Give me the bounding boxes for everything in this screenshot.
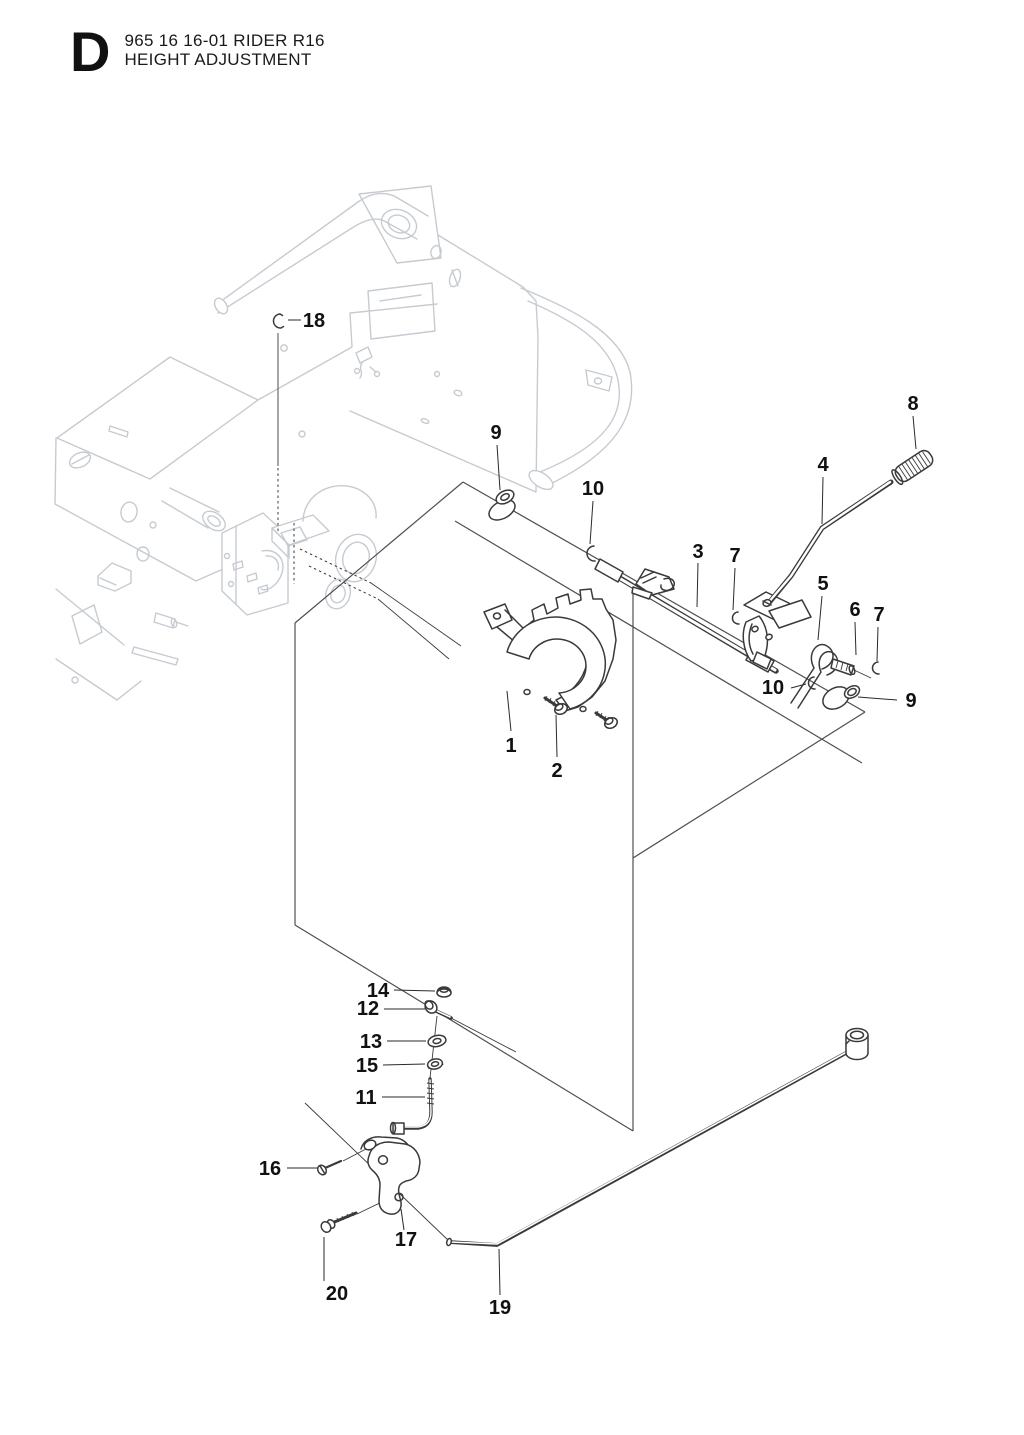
part-7-clip-left: [732, 612, 739, 624]
callout-8-label: 8: [907, 393, 918, 415]
part-19-long-rod: [446, 1029, 868, 1247]
parts-diagram-page: D 965 16 16-01 RIDER R16 HEIGHT ADJUSTME…: [0, 0, 1024, 1435]
part-9-bushing-lower: [819, 682, 862, 713]
rod-sleeve-upper: [595, 559, 623, 582]
steering-head-plate: [359, 186, 441, 263]
callout-2-label: 2: [551, 760, 562, 782]
hook-bolt-rod: [404, 1079, 431, 1128]
callout-1-leader: [507, 691, 511, 731]
part-9-bushing-upper: [486, 487, 519, 524]
frame-hole-small: [150, 522, 156, 528]
deck-slot-small: [421, 418, 430, 424]
callout-1-label: 1: [505, 735, 516, 757]
part-8-knob: [890, 448, 935, 486]
deck-opening: [368, 283, 435, 339]
callout-7-leader: [877, 627, 878, 661]
bracket-tab: [484, 604, 512, 629]
callout-16-label: 16: [259, 1158, 281, 1180]
washer-outer: [427, 1034, 447, 1049]
sector-hole: [524, 690, 530, 695]
callout-9-label: 9: [905, 690, 916, 712]
assembly-axis-lines: [278, 333, 516, 1241]
callout-10-leader: [590, 501, 593, 544]
callout-3-leader: [697, 563, 698, 607]
callout-7-label: 7: [873, 604, 884, 626]
callout-17-label: 17: [395, 1229, 417, 1251]
frame-notch: [109, 426, 128, 437]
axle-tube-cap: [199, 507, 229, 534]
part-16-screw: [316, 1161, 341, 1176]
callout-15-leader: [383, 1064, 425, 1065]
callout-2-leader: [556, 715, 557, 757]
nut-base: [437, 989, 451, 997]
frame-slot-hole-line: [72, 455, 89, 464]
sector-hole: [580, 707, 586, 712]
frame-bent-tab: [98, 563, 131, 591]
bolt-shaft: [332, 1213, 356, 1223]
callout-7-label: 7: [729, 545, 740, 567]
part-11-hook-bolt: [391, 1079, 435, 1134]
callout-4-leader: [822, 477, 823, 524]
frame-hole-small: [299, 431, 305, 437]
tube-end-cap: [212, 296, 230, 316]
callout-4-label: 4: [817, 454, 829, 476]
callout-19-label: 19: [489, 1297, 511, 1319]
frame-tab: [586, 370, 612, 391]
callout-10-leader: [791, 684, 806, 688]
callout-13-label: 13: [360, 1031, 382, 1053]
frame-hole-small: [72, 677, 78, 683]
callout-11-label: 11: [355, 1087, 376, 1109]
callout-10-label: 10: [582, 478, 604, 500]
frame-hole: [119, 501, 138, 523]
sector-plate-front: [507, 617, 605, 709]
bolt-threads: [545, 696, 555, 706]
panel-axis-top: [463, 482, 865, 712]
bolt-threads: [596, 711, 606, 721]
screw-shaft: [325, 1161, 341, 1168]
callout-9-leader: [858, 697, 897, 700]
callout-17-leader: [401, 1209, 404, 1230]
callout-9-leader: [497, 445, 500, 490]
deck-slot-small: [453, 389, 462, 396]
callout-9-label: 9: [490, 422, 501, 444]
footrest-hole: [72, 605, 102, 644]
callout-18-label: 18: [303, 310, 325, 332]
callout-6-leader: [855, 622, 856, 655]
rod-core: [450, 1053, 845, 1244]
part-15-nut-small: [427, 1058, 444, 1071]
callout-6-label: 6: [849, 599, 860, 621]
callout-5-label: 5: [817, 573, 828, 595]
callout-3-label: 3: [692, 541, 703, 563]
callout-8-leader: [913, 416, 916, 449]
rod-end-cylinder: [846, 1029, 868, 1060]
footrest-edges: [56, 589, 141, 700]
callout-10-label: 10: [762, 677, 784, 699]
clamp-spacer: [753, 652, 771, 669]
part-13-washer: [427, 1034, 447, 1049]
callout-7-leader: [733, 568, 735, 610]
frame-hole-small: [281, 345, 287, 351]
part-12-bolt: [423, 998, 451, 1018]
part-14-nut: [437, 987, 451, 997]
knob-body: [893, 448, 936, 484]
frame-bar: [132, 647, 178, 665]
part-18-circlip: [273, 314, 283, 328]
rod-body: [449, 1053, 846, 1245]
seat-latch-screw: [375, 372, 380, 377]
callout-19-leader: [499, 1249, 500, 1295]
part-1-height-sector-bracket: [484, 589, 616, 712]
bracket-face: [368, 1142, 420, 1214]
cylinder-top: [846, 1029, 868, 1042]
part-20-bolt: [319, 1212, 356, 1234]
frame-hole-small: [355, 369, 360, 374]
diagram-canvas: 12345677899101011121314151617181920: [0, 0, 1024, 1435]
part-6-pin: [831, 659, 871, 678]
callout-14-label: 14: [367, 980, 390, 1002]
hook-bolt-core: [405, 1080, 431, 1127]
frame-tab-hole: [595, 378, 602, 384]
lever-rod: [768, 482, 891, 604]
callout-5-leader: [818, 596, 822, 640]
callout-20-label: 20: [326, 1283, 348, 1305]
part-7-clip-right: [872, 662, 879, 674]
callout-14-leader: [394, 990, 435, 991]
part-17-bracket: [361, 1137, 420, 1214]
hub-bore: [330, 529, 383, 587]
projection-lines: [371, 583, 461, 659]
deck-hole-small: [435, 372, 440, 377]
callout-15-label: 15: [356, 1055, 378, 1077]
frame-slot-line: [452, 270, 458, 286]
